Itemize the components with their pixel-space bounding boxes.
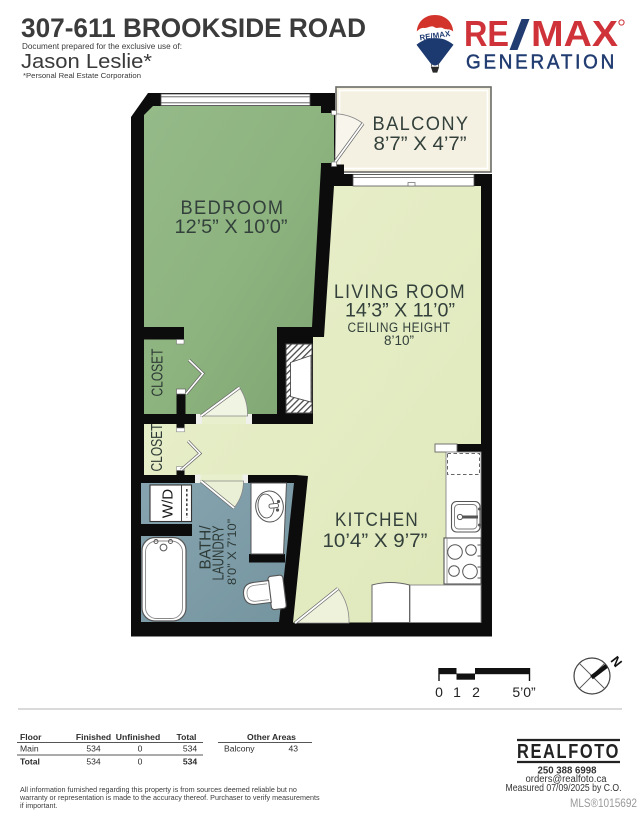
svg-text:RE: RE	[464, 13, 509, 54]
svg-text:if important.: if important.	[20, 801, 58, 810]
svg-text:5’0”: 5’0”	[512, 684, 536, 700]
svg-text:8’10”: 8’10”	[384, 333, 414, 348]
svg-text:Unfinished: Unfinished	[116, 732, 160, 742]
svg-text:0: 0	[435, 684, 443, 700]
svg-text:43: 43	[288, 744, 298, 754]
svg-text:LAUNDRY: LAUNDRY	[211, 526, 228, 581]
svg-text:Other Areas: Other Areas	[247, 732, 296, 742]
svg-text:Measured 07/09/2025 by C.O.: Measured 07/09/2025 by C.O.	[506, 783, 622, 794]
svg-text:534: 534	[183, 757, 198, 767]
svg-text:10’4” X 9’7”: 10’4” X 9’7”	[323, 530, 428, 552]
svg-text:14’3” X 11’0”: 14’3” X 11’0”	[345, 300, 455, 322]
svg-text:GENERATION: GENERATION	[466, 51, 617, 74]
svg-text:N: N	[608, 653, 626, 670]
svg-text:0: 0	[138, 744, 143, 754]
svg-text:BALCONY: BALCONY	[373, 113, 470, 135]
svg-text:warranty or representation is: warranty or representation is made to th…	[19, 793, 320, 802]
svg-text:534: 534	[86, 757, 101, 767]
svg-text:534: 534	[183, 744, 198, 754]
svg-text:307-611 BROOKSIDE ROAD: 307-611 BROOKSIDE ROAD	[21, 13, 366, 43]
svg-text:Total: Total	[20, 757, 40, 767]
svg-text:W/D: W/D	[160, 489, 177, 518]
svg-text:CLOSET: CLOSET	[149, 423, 166, 471]
svg-text:534: 534	[86, 744, 101, 754]
svg-text:12’5” X 10’0”: 12’5” X 10’0”	[175, 216, 288, 238]
svg-text:MAX: MAX	[531, 13, 618, 54]
svg-text:CLOSET: CLOSET	[150, 348, 167, 396]
svg-text:*Personal Real Estate Corporat: *Personal Real Estate Corporation	[23, 71, 141, 80]
svg-text:Document prepared for the excl: Document prepared for the exclusive use …	[22, 41, 182, 51]
svg-text:0: 0	[138, 757, 143, 767]
svg-text:Jason Leslie*: Jason Leslie*	[21, 51, 152, 73]
svg-text:Total: Total	[177, 732, 197, 742]
svg-text:Balcony: Balcony	[224, 744, 255, 754]
svg-text:MLS®1015692: MLS®1015692	[570, 796, 637, 810]
svg-text:8’0” X 7’10”: 8’0” X 7’10”	[227, 519, 239, 585]
svg-text:Floor: Floor	[20, 732, 42, 742]
svg-text:8’7” X 4’7”: 8’7” X 4’7”	[374, 133, 467, 155]
svg-text:REALFOTO: REALFOTO	[517, 741, 620, 763]
svg-text:Main: Main	[20, 744, 39, 754]
svg-text:2: 2	[472, 684, 480, 700]
svg-text:1: 1	[453, 684, 461, 700]
svg-text:KITCHEN: KITCHEN	[335, 509, 419, 531]
svg-text:Finished: Finished	[76, 732, 111, 742]
